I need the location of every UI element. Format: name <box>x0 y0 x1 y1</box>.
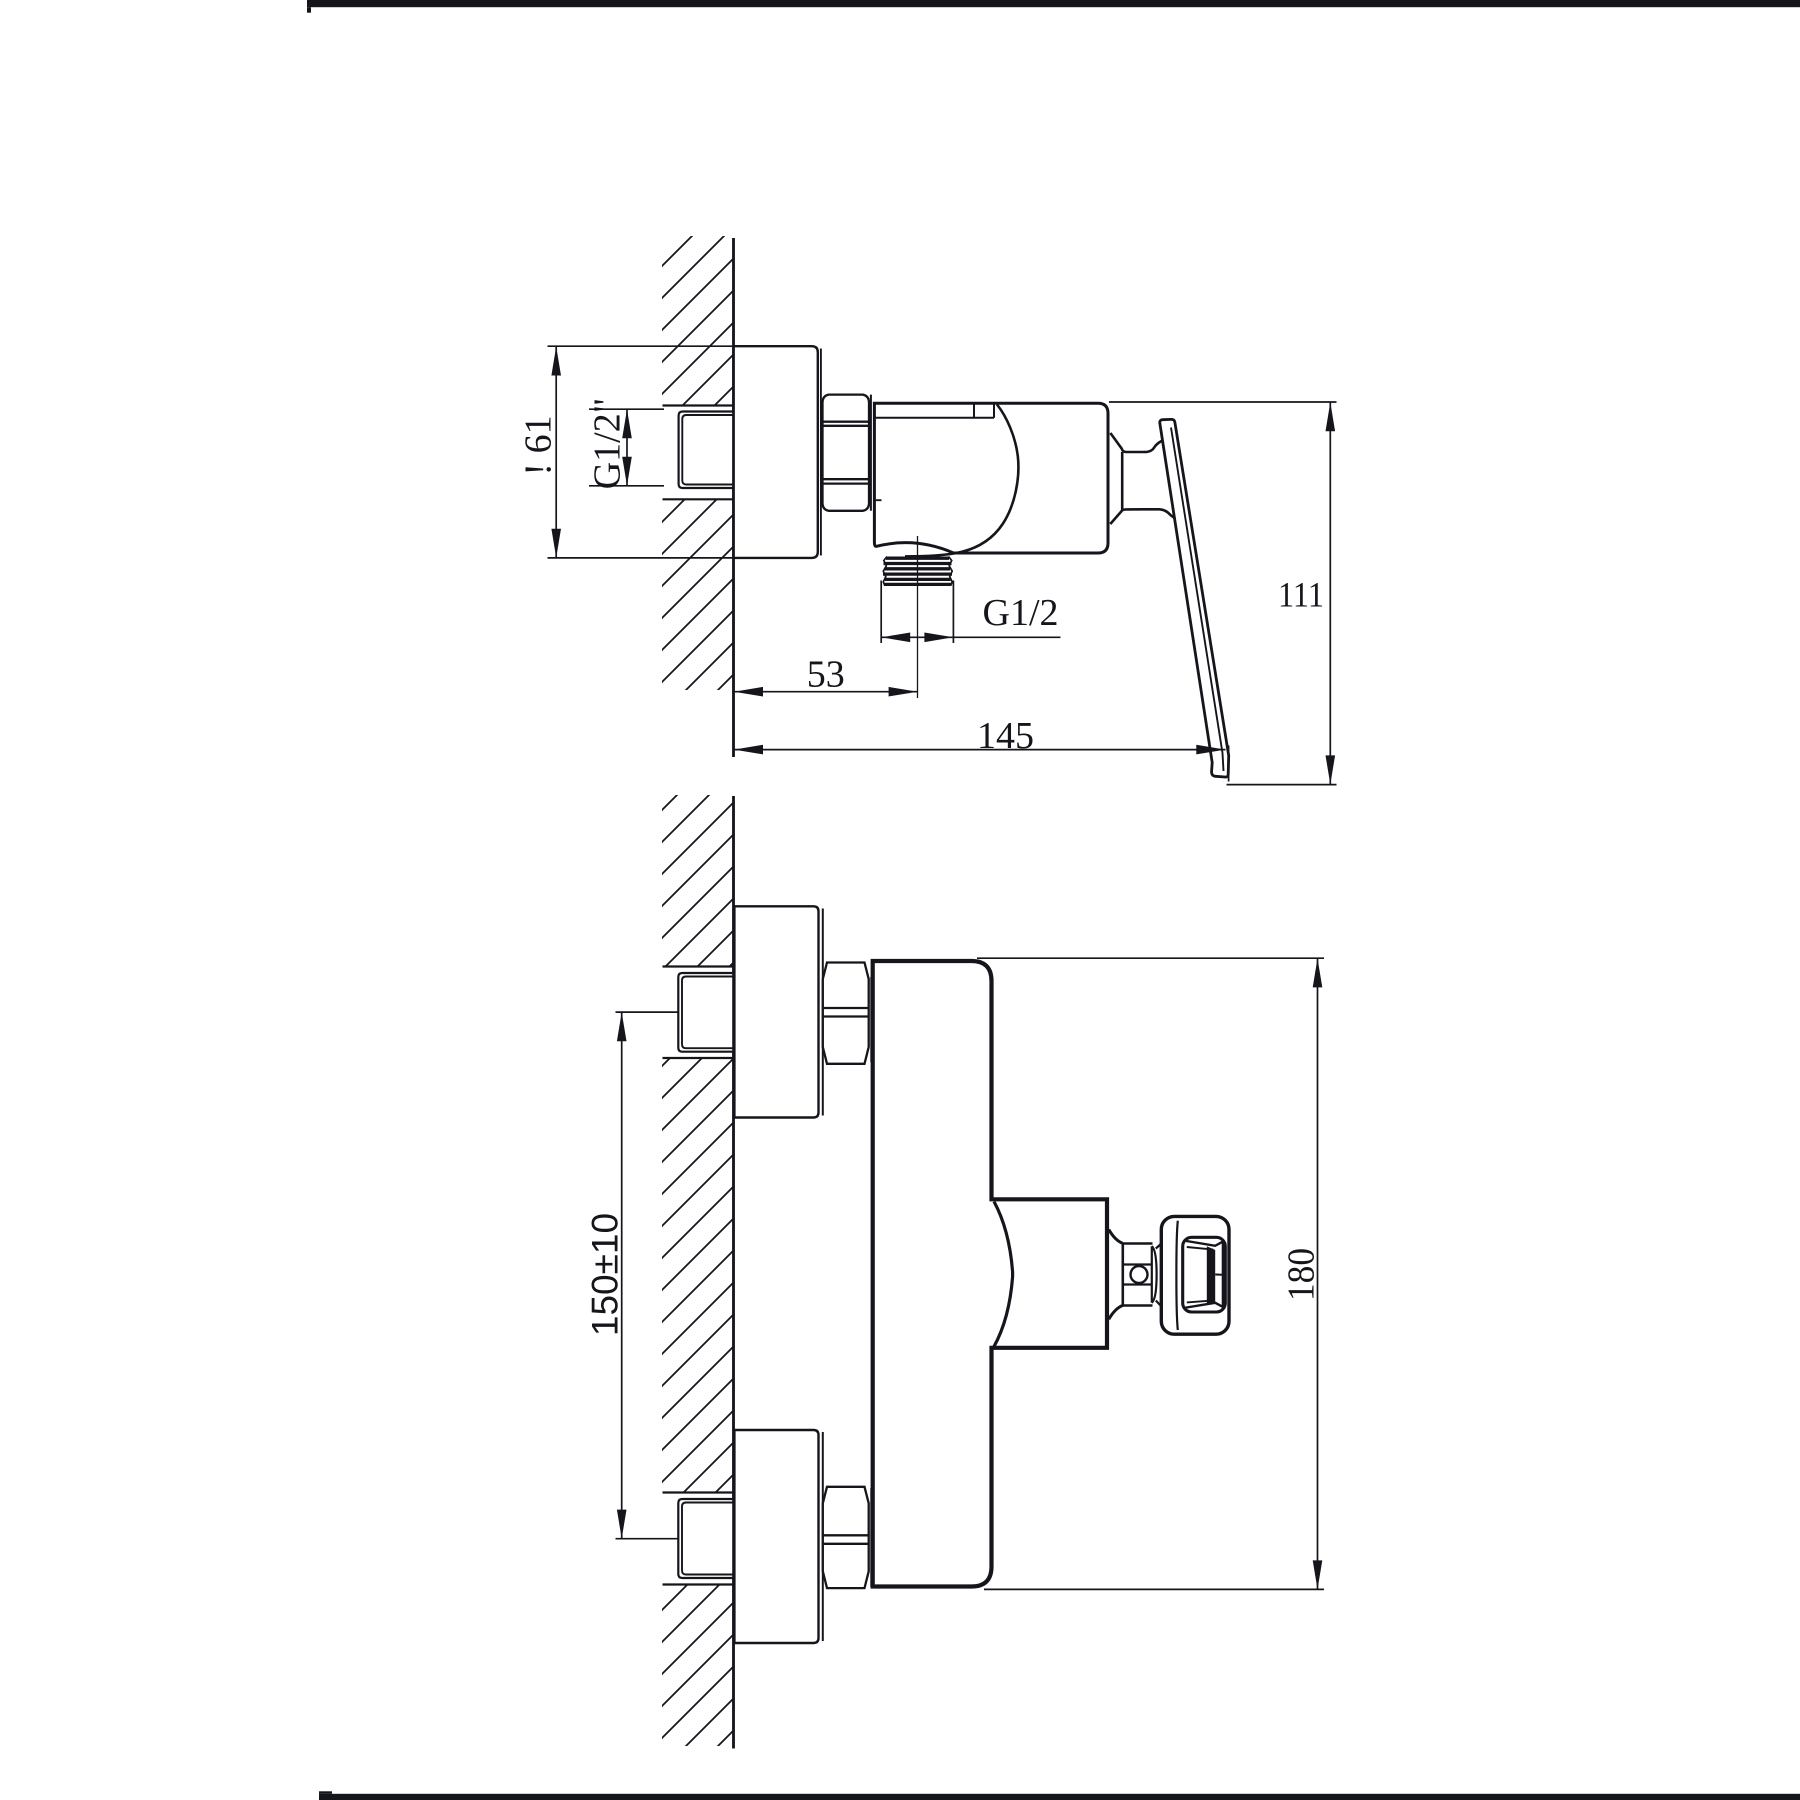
svg-text:180: 180 <box>1281 1248 1323 1301</box>
svg-text:145: 145 <box>977 715 1034 757</box>
svg-text:G1/2": G1/2" <box>587 398 629 490</box>
svg-text:53: 53 <box>807 654 845 696</box>
svg-text:! 61: ! 61 <box>518 415 560 475</box>
svg-text:111: 111 <box>1278 575 1324 615</box>
svg-text:150±10: 150±10 <box>585 1213 626 1336</box>
svg-text:G1/2: G1/2 <box>983 592 1059 634</box>
